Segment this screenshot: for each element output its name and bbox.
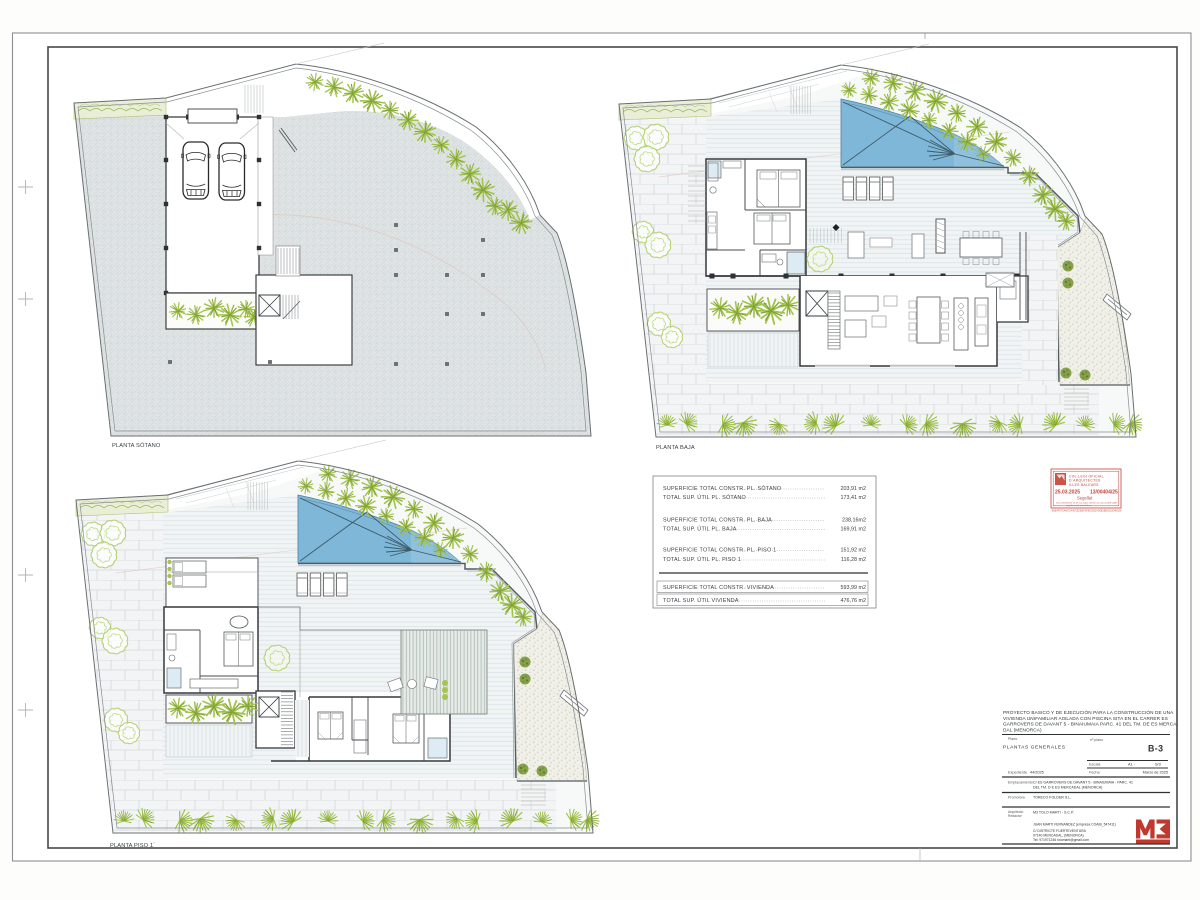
svg-text:Marzo de 2025: Marzo de 2025 — [1143, 771, 1168, 775]
svg-text:Segellat: Segellat — [1077, 496, 1093, 501]
svg-text:TORECO FOLDER S.L.: TORECO FOLDER S.L. — [1033, 796, 1071, 800]
svg-text:203,91 m2: 203,91 m2 — [841, 486, 866, 492]
svg-text:Data 25/03/2025 12:33 Col leg: Data 25/03/2025 12:33 Col legiat 411535 … — [1056, 501, 1117, 504]
svg-text:B5E4F57C4A071A4672E3EB76F851D5: B5E4F57C4A071A4672E3EB76F851D52AD0B1BBC6… — [1052, 510, 1122, 513]
svg-text:13/00404/25: 13/00404/25 — [1090, 490, 1118, 496]
svg-text:Promotora: Promotora — [1008, 796, 1025, 800]
svg-text:PLANTA BAJA: PLANTA BAJA — [656, 445, 695, 451]
svg-text:238,16m2: 238,16m2 — [842, 518, 866, 524]
svg-text:Escala: Escala — [1089, 763, 1101, 767]
svg-text:A1 -: A1 - — [1128, 763, 1136, 767]
svg-text:GARROVERS DE DAVANT 5 - BINAIU: GARROVERS DE DAVANT 5 - BINAIUMAIA PARC.… — [1003, 722, 1178, 727]
svg-text:07140 MERCADAL, (MENORCA): 07140 MERCADAL, (MENORCA) — [1033, 834, 1084, 838]
svg-text:116,28 m2: 116,28 m2 — [841, 557, 866, 563]
svg-text:173,41 m2: 173,41 m2 — [841, 495, 866, 501]
svg-text:PLANTA SÓTANO: PLANTA SÓTANO — [112, 442, 161, 449]
svg-text:Fecha: Fecha — [1089, 771, 1100, 775]
svg-text:TOTAL SUP. ÚTIL PL. BAJA: TOTAL SUP. ÚTIL PL. BAJA — [663, 526, 737, 533]
svg-text:SUPERFICIE TOTAL CONSTR. VIV: SUPERFICIE TOTAL CONSTR. VIVIENDA — [663, 585, 774, 591]
svg-text:151,92 m2: 151,92 m2 — [841, 548, 866, 554]
svg-text:SUPERFICIE TOTAL CONSTR. PL.: SUPERFICIE TOTAL CONSTR. PL. BAJA — [663, 518, 772, 524]
svg-text:SUPERFICIE TOTAL CONSTR. PL.: SUPERFICIE TOTAL CONSTR. PL. PISO 1 — [663, 548, 776, 554]
svg-text:169,91 m2: 169,91 m2 — [841, 527, 866, 533]
svg-text:44/2025: 44/2025 — [1030, 771, 1044, 775]
svg-text:PLANTAS GENERALES: PLANTAS GENERALES — [1003, 745, 1066, 751]
svg-text:DEL TM. D E ES MERCADAL (MENOR: DEL TM. D E ES MERCADAL (MENORCA) — [1033, 786, 1102, 790]
svg-text:PROYECTO BASICO Y DE EJECU: PROYECTO BASICO Y DE EJECUCIÓN PARA LA C… — [1003, 709, 1174, 715]
svg-text:JUAN MARTI FERNANDEZ (empresa: JUAN MARTI FERNANDEZ (empresa COAIB_5474… — [1033, 823, 1116, 827]
svg-text:S/3: S/3 — [1155, 763, 1161, 767]
svg-text:B-3: B-3 — [1148, 744, 1163, 754]
svg-text:SUPERFICIE TOTAL CONSTR. PL.: SUPERFICIE TOTAL CONSTR. PL. SÓTANO — [663, 485, 781, 492]
svg-text:segellat.coaib.es/validacio: segellat.coaib.es/validacio — [1066, 504, 1092, 507]
svg-text:TOTAL SUP. ÚTIL PL. PISO 1: TOTAL SUP. ÚTIL PL. PISO 1 — [663, 556, 741, 563]
svg-text:VIVIENDA UNIFAMILIAR AISL: VIVIENDA UNIFAMILIAR AISLADA CON PISCINA… — [1003, 716, 1168, 721]
svg-text:C/ DISTRICTE FUERTEVENTURA: C/ DISTRICTE FUERTEVENTURA — [1033, 829, 1087, 833]
svg-text:Tel: 971971246 tolomarti@: Tel: 971971246 tolomarti@gmail.com — [1033, 838, 1089, 842]
svg-text:C/ ES GARROVERS DE DAVANT 5 -: C/ ES GARROVERS DE DAVANT 5 - BINAIUMAIA… — [1033, 781, 1133, 785]
svg-text:476,76 m2: 476,76 m2 — [841, 598, 866, 604]
svg-text:nº plano: nº plano — [1090, 738, 1103, 742]
svg-text:DAL (MENORCA): DAL (MENORCA) — [1003, 727, 1042, 732]
svg-text:TOTAL SUP. ÚTIL PL. SÓTANO: TOTAL SUP. ÚTIL PL. SÓTANO — [663, 494, 746, 501]
svg-text:Plano: Plano — [1008, 737, 1017, 741]
svg-text:593,99 m2: 593,99 m2 — [841, 585, 866, 591]
svg-text:Redactor: Redactor — [1008, 814, 1023, 818]
svg-text:PLANTA PISO 1´: PLANTA PISO 1´ — [110, 843, 155, 849]
svg-text:Expediente: Expediente — [1008, 771, 1027, 775]
svg-text:M3 TOLO MARTI - S.C.P.: M3 TOLO MARTI - S.C.P. — [1033, 811, 1074, 815]
svg-text:Emplazamiento: Emplazamiento — [1008, 781, 1033, 785]
svg-text:ILLES BALEARS: ILLES BALEARS — [1069, 483, 1099, 487]
svg-text:TOTAL SUP. ÚTIL VIVIENDA: TOTAL SUP. ÚTIL VIVIENDA — [663, 597, 739, 604]
